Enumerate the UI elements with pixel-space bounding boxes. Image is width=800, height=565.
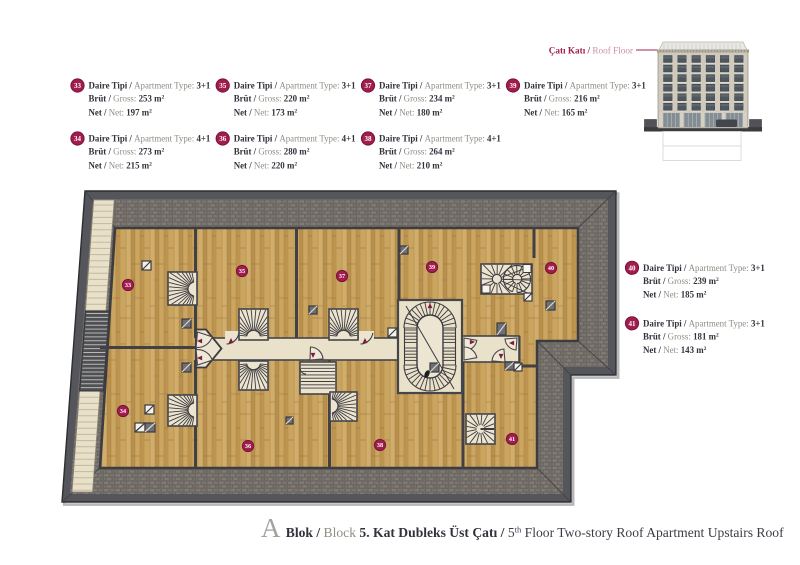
svg-text:40: 40	[629, 264, 637, 272]
svg-text:35: 35	[239, 268, 245, 275]
svg-text:Brüt / Gross: 239 m2: Brüt / Gross: 239 m2	[643, 276, 719, 286]
svg-text:35: 35	[219, 82, 227, 90]
svg-text:37: 37	[365, 82, 373, 90]
svg-text:36: 36	[245, 443, 251, 450]
svg-text:38: 38	[377, 442, 383, 449]
svg-text:Brüt / Gross: 181 m2: Brüt / Gross: 181 m2	[643, 332, 719, 342]
svg-text:Çatı Katı / Roof Floor: Çatı Katı / Roof Floor	[549, 46, 633, 56]
svg-text:41: 41	[629, 320, 637, 328]
svg-text:Brüt / Gross: 220 m2: Brüt / Gross: 220 m2	[234, 94, 310, 104]
svg-text:Daire Tipi / Apartment Type: 3: Daire Tipi / Apartment Type: 3+1	[379, 81, 501, 91]
svg-text:Daire Tipi / Apartment Type: 4: Daire Tipi / Apartment Type: 4+1	[234, 134, 356, 144]
svg-text:Net / Net: 197 m2: Net / Net: 197 m2	[89, 107, 153, 117]
svg-text:Net / Net: 165 m2: Net / Net: 165 m2	[524, 107, 588, 117]
svg-text:33: 33	[125, 282, 131, 289]
svg-text:Daire Tipi / Apartment Type: 3: Daire Tipi / Apartment Type: 3+1	[524, 81, 646, 91]
svg-text:Brüt / Gross: 253 m2: Brüt / Gross: 253 m2	[89, 94, 165, 104]
svg-text:Brüt / Gross: 234 m2: Brüt / Gross: 234 m2	[379, 94, 455, 104]
svg-text:41: 41	[509, 436, 515, 443]
svg-text:Daire Tipi / Apartment Type: 3: Daire Tipi / Apartment Type: 3+1	[643, 318, 765, 328]
svg-text:39: 39	[510, 82, 518, 90]
svg-text:Net / Net: 143 m2: Net / Net: 143 m2	[643, 345, 707, 355]
svg-text:40: 40	[548, 265, 554, 272]
svg-text:34: 34	[120, 408, 126, 415]
svg-text:39: 39	[429, 264, 435, 271]
svg-text:Net / Net: 210 m2: Net / Net: 210 m2	[379, 160, 443, 170]
svg-text:Daire Tipi / Apartment Type: 4: Daire Tipi / Apartment Type: 4+1	[89, 134, 211, 144]
svg-text:33: 33	[74, 82, 82, 90]
svg-text:Daire Tipi / Apartment Type: 3: Daire Tipi / Apartment Type: 3+1	[643, 263, 765, 273]
svg-text:Brüt / Gross: 273 m2: Brüt / Gross: 273 m2	[89, 147, 165, 157]
svg-text:Net / Net: 215 m2: Net / Net: 215 m2	[89, 160, 153, 170]
svg-text:Net / Net: 173 m2: Net / Net: 173 m2	[234, 107, 298, 117]
svg-text:Daire Tipi / Apartment Type: 4: Daire Tipi / Apartment Type: 4+1	[379, 134, 501, 144]
svg-text:Net / Net: 180 m2: Net / Net: 180 m2	[379, 107, 443, 117]
svg-text:34: 34	[74, 135, 82, 143]
svg-text:Net / Net: 220 m2: Net / Net: 220 m2	[234, 160, 298, 170]
svg-text:Daire Tipi / Apartment Type: 3: Daire Tipi / Apartment Type: 3+1	[234, 81, 356, 91]
svg-text:37: 37	[339, 273, 345, 280]
svg-text:Brüt / Gross: 216 m2: Brüt / Gross: 216 m2	[524, 94, 600, 104]
svg-text:Brüt / Gross: 280 m2: Brüt / Gross: 280 m2	[234, 147, 310, 157]
svg-text:36: 36	[219, 135, 227, 143]
svg-text:38: 38	[365, 135, 373, 143]
svg-text:Daire Tipi / Apartment Type: 3: Daire Tipi / Apartment Type: 3+1	[89, 81, 211, 91]
svg-text:Brüt / Gross: 264 m2: Brüt / Gross: 264 m2	[379, 147, 455, 157]
svg-text:Net / Net: 185 m2: Net / Net: 185 m2	[643, 290, 707, 300]
